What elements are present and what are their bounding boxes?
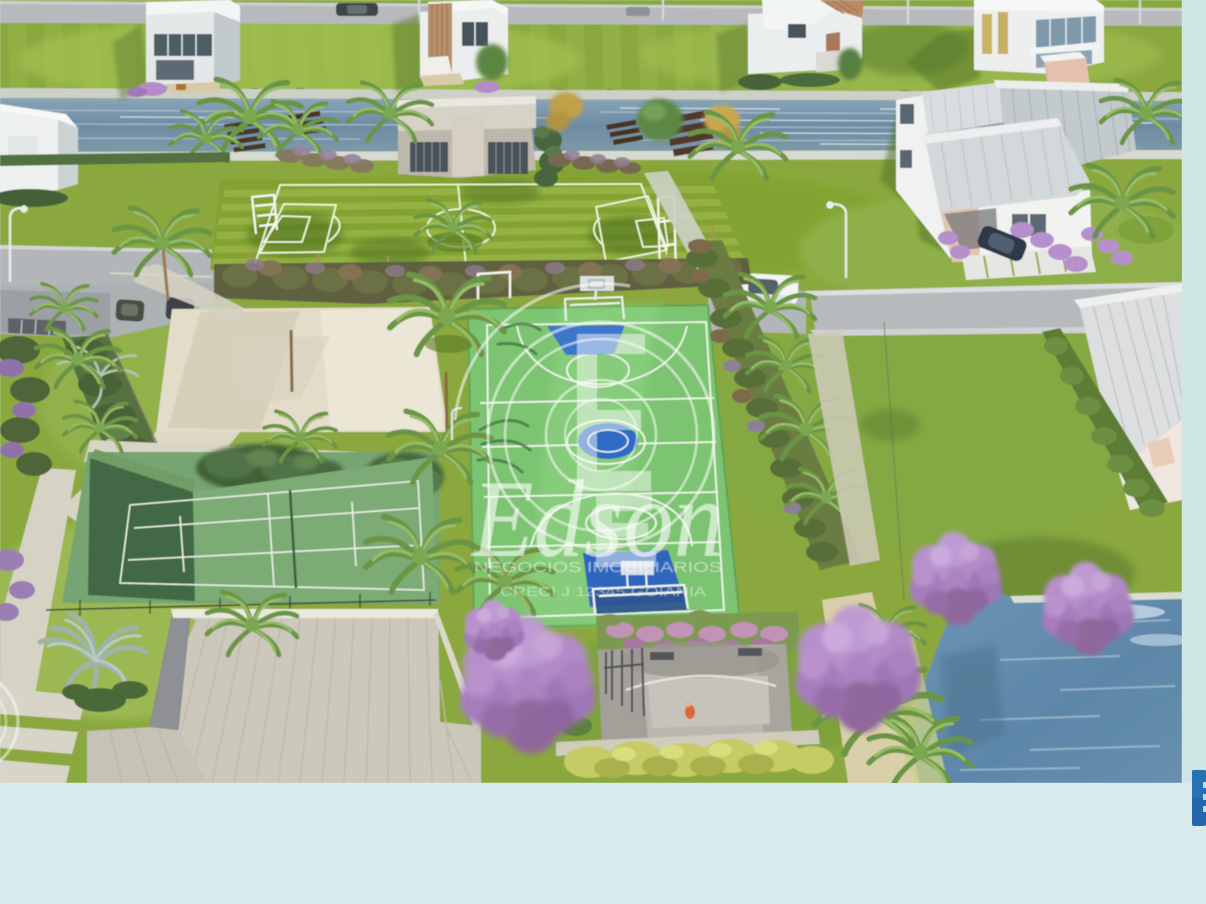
svg-text:NEGOCIOS IMOBILIARIOS: NEGOCIOS IMOBILIARIOS (474, 559, 722, 576)
svg-text:CRECI J 12345 GOIANIA: CRECI J 12345 GOIANIA (500, 584, 706, 599)
